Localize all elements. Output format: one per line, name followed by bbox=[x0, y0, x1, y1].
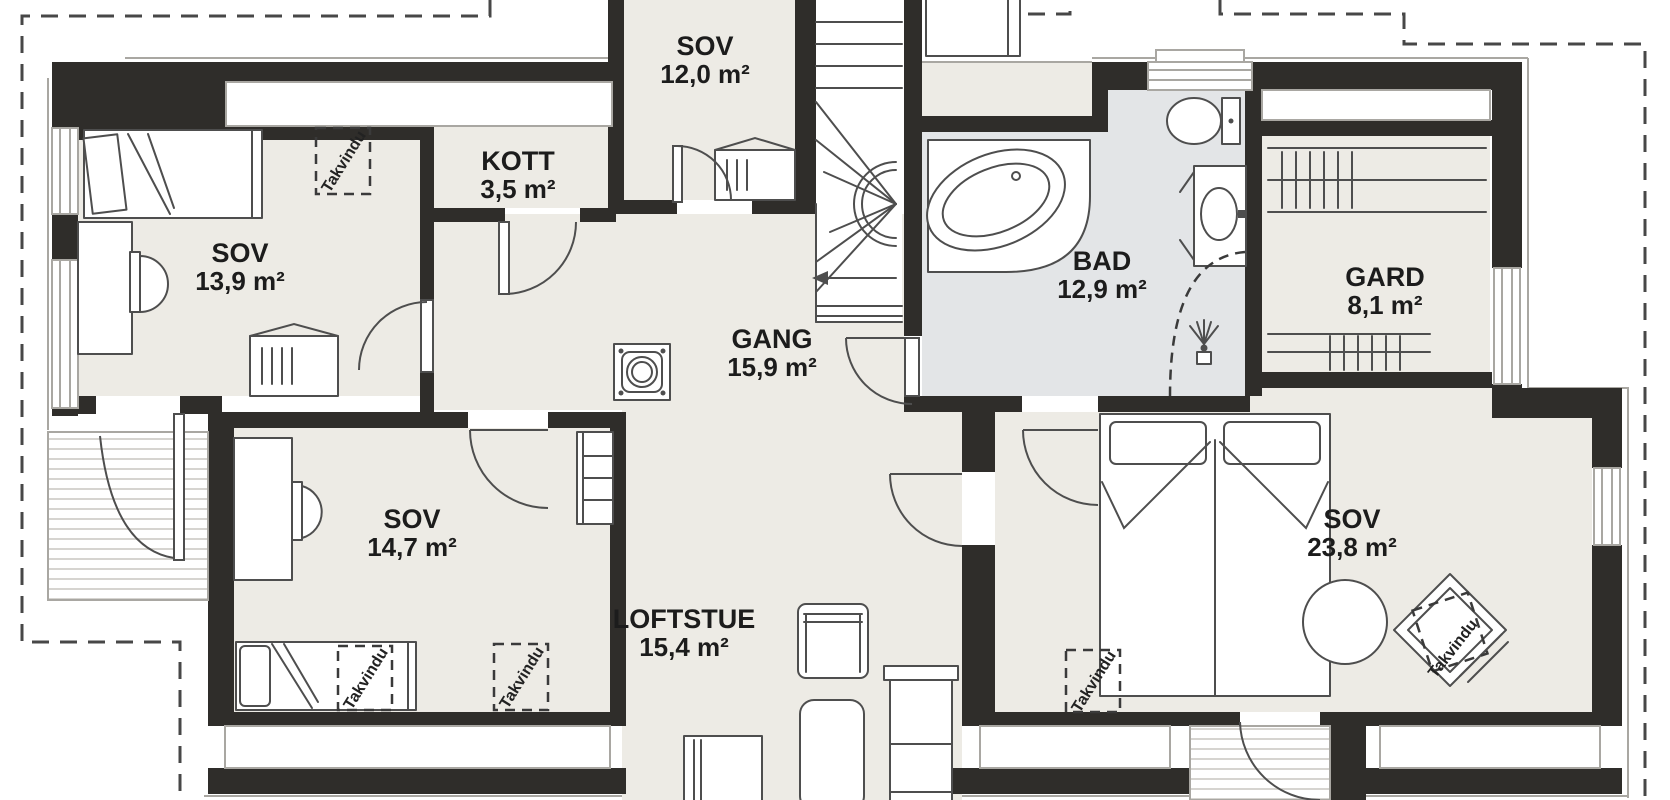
chimney bbox=[614, 344, 670, 400]
svg-text:12,0 m²: 12,0 m² bbox=[660, 59, 750, 89]
shelf-unit bbox=[884, 666, 958, 800]
window-sov-23-8 bbox=[1594, 468, 1620, 545]
bottom-window-left bbox=[225, 726, 610, 768]
toilet bbox=[1167, 98, 1240, 144]
label-kott: KOTT bbox=[481, 146, 555, 176]
svg-text:15,9 m²: 15,9 m² bbox=[727, 352, 817, 382]
wardrobe-sov-14-7 bbox=[577, 432, 613, 524]
bed-single-sov-13-9 bbox=[83, 130, 262, 218]
svg-text:13,9 m²: 13,9 m² bbox=[195, 266, 285, 296]
svg-text:14,7 m²: 14,7 m² bbox=[367, 532, 457, 562]
bed-cut-top bbox=[926, 0, 1020, 56]
room-cut-top bbox=[922, 62, 1092, 116]
round-table bbox=[1303, 580, 1387, 664]
label-sov-23-8: SOV bbox=[1323, 504, 1380, 534]
label-bad: BAD bbox=[1073, 246, 1132, 276]
label-sov-12: SOV bbox=[676, 31, 733, 61]
floor-plan-drawing: Takvindu bbox=[0, 0, 1670, 800]
svg-text:23,8 m²: 23,8 m² bbox=[1307, 532, 1397, 562]
window-niche bbox=[1148, 50, 1252, 90]
rear-deck bbox=[1190, 726, 1330, 800]
label-gard: GARD bbox=[1345, 262, 1425, 292]
armchair bbox=[798, 604, 868, 678]
window-gard bbox=[1494, 268, 1520, 384]
bed-single-sov-14-7 bbox=[236, 642, 416, 710]
top-window-band bbox=[226, 82, 612, 126]
bed-double bbox=[1100, 414, 1330, 696]
window-left-1 bbox=[52, 128, 78, 214]
bottom-window-mid bbox=[980, 726, 1170, 768]
svg-text:12,9 m²: 12,9 m² bbox=[1057, 274, 1147, 304]
svg-text:15,4 m²: 15,4 m² bbox=[639, 632, 729, 662]
chaise-lounge bbox=[800, 700, 864, 800]
label-loftstue: LOFTSTUE bbox=[613, 604, 756, 634]
floor-plan-page: Takvindu bbox=[0, 0, 1670, 800]
label-sov-14-7: SOV bbox=[383, 504, 440, 534]
bathtub bbox=[912, 130, 1090, 272]
label-gang: GANG bbox=[732, 324, 813, 354]
stairwell bbox=[816, 0, 902, 322]
tv-bench bbox=[684, 736, 762, 800]
window-left-2 bbox=[52, 260, 78, 408]
gard-top-band bbox=[1262, 90, 1490, 120]
svg-text:8,1 m²: 8,1 m² bbox=[1347, 290, 1422, 320]
svg-text:3,5 m²: 3,5 m² bbox=[480, 174, 555, 204]
label-sov-13-9: SOV bbox=[211, 238, 268, 268]
bottom-window-right bbox=[1380, 726, 1600, 768]
